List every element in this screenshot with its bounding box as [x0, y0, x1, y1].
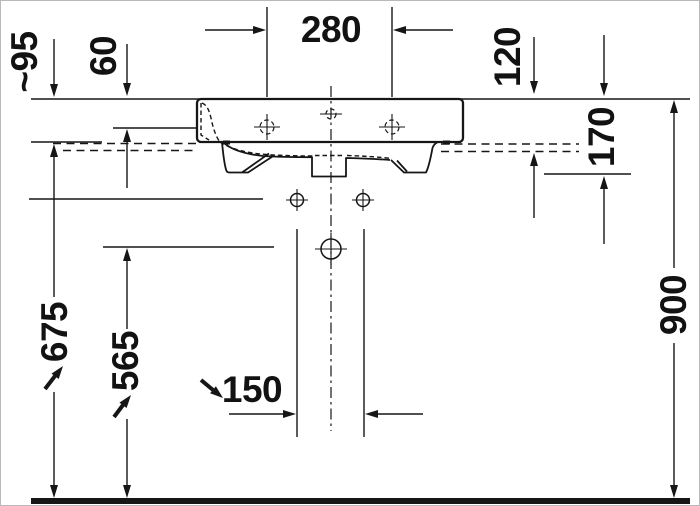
dim-150-arrow-left-icon	[365, 410, 378, 418]
dim-170-arrow-down-icon	[600, 83, 608, 96]
dim-150-diagonal-arrow-shaft	[201, 380, 213, 390]
dim-120-arrow-up-icon	[530, 153, 538, 166]
dim-150: 150	[201, 229, 423, 437]
dim-95: ~95	[4, 31, 58, 297]
dim-95-label: ~95	[4, 31, 45, 92]
dim-565-arrow-up-icon	[123, 248, 131, 261]
dim-60-label: 60	[83, 36, 124, 76]
dim-120: 120	[487, 27, 538, 218]
dim-95-arrow-up-icon	[50, 144, 58, 157]
tap-hole-right	[379, 114, 405, 140]
drain-hole	[315, 233, 347, 265]
overflow-diagonal-dashed	[202, 103, 220, 142]
dim-150-label: 150	[222, 369, 282, 410]
dim-675: 675	[34, 302, 75, 498]
dim-565-label: 565	[105, 331, 146, 391]
mounting-pad-left	[223, 141, 230, 145]
dim-170-label: 170	[581, 107, 622, 167]
dim-170-arrow-up-icon	[600, 176, 608, 189]
floor-line	[31, 498, 690, 504]
dim-280-arrow-right-icon	[253, 26, 266, 34]
dim-120-label: 120	[487, 27, 528, 87]
mounting-pad-right	[443, 141, 450, 145]
dim-675-diagonal-arrow-shaft	[45, 376, 55, 389]
dim-60-arrow-down-icon	[123, 83, 131, 96]
dim-675-arrow-down-icon	[50, 485, 58, 498]
dim-280: 280	[205, 7, 453, 97]
left-leg-strut	[242, 154, 269, 173]
dim-280-label: 280	[301, 9, 361, 50]
fixing-hole-left	[286, 189, 308, 211]
dim-900-label: 900	[653, 275, 694, 335]
dim-170: 170	[581, 35, 622, 244]
right-leg	[391, 142, 438, 173]
dim-675-label: 675	[34, 302, 75, 362]
technical-drawing-canvas: 280 ~95 60 120 170 900	[0, 0, 700, 506]
dim-60-arrow-up-icon	[123, 129, 131, 142]
dim-900: 900	[653, 100, 694, 498]
dim-565: 565	[105, 248, 146, 498]
dim-60: 60	[83, 36, 131, 188]
dim-95-arrow-down-icon	[50, 84, 58, 97]
dim-280-arrow-left-icon	[393, 26, 406, 34]
dim-900-arrow-down-icon	[670, 485, 678, 498]
washbasin-dimension-diagram: 280 ~95 60 120 170 900	[1, 1, 700, 506]
bowl-underside	[223, 142, 390, 177]
dim-565-diagonal-arrow-shaft	[114, 405, 123, 417]
fixing-hole-right	[352, 189, 374, 211]
tap-hole-left	[254, 114, 280, 140]
basin-body	[197, 99, 463, 142]
dim-900-arrow-up-icon	[670, 100, 678, 113]
dim-565-arrow-down-icon	[123, 485, 131, 498]
dim-150-arrow-right-icon	[283, 410, 296, 418]
dim-120-arrow-down-icon	[530, 81, 538, 94]
